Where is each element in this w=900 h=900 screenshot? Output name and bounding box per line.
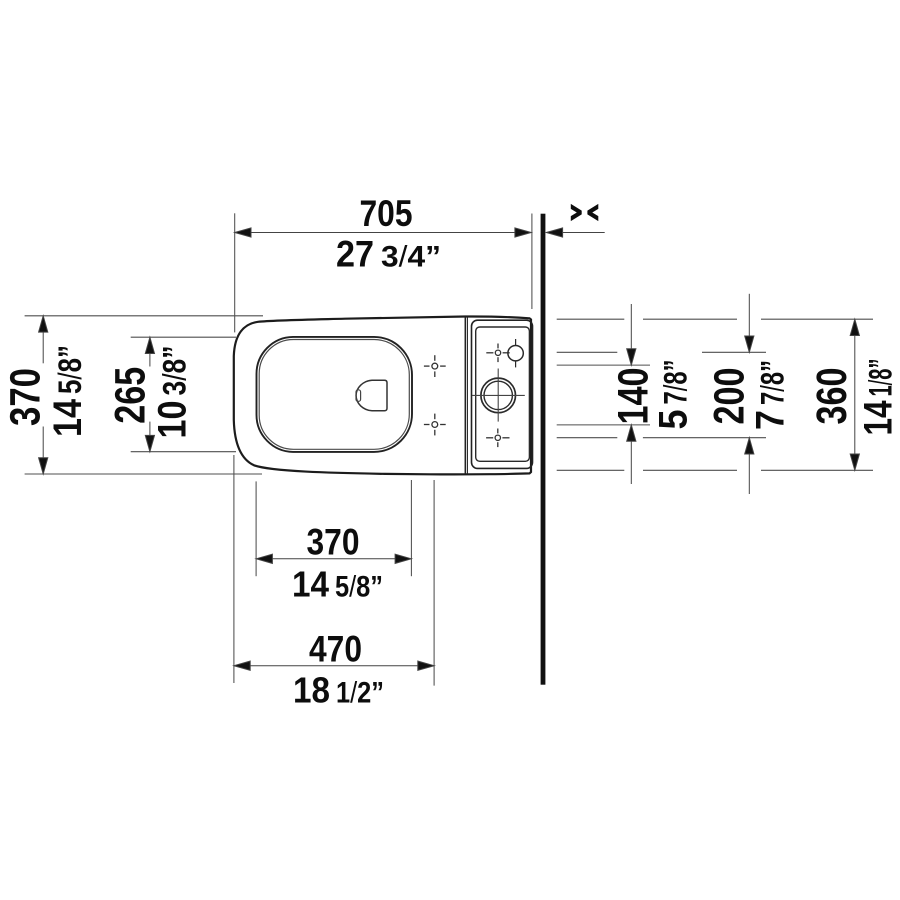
svg-text:57/8”: 57/8” [652,360,696,430]
svg-text:265: 265 [107,367,155,424]
svg-text:145/8”: 145/8” [292,564,383,605]
svg-text:141/8”: 141/8” [857,359,900,436]
svg-text:470: 470 [309,629,362,670]
svg-text:273/4”: 273/4” [336,234,441,275]
svg-text:370: 370 [307,522,360,563]
svg-text:181/2”: 181/2” [293,670,384,711]
svg-text:200: 200 [706,368,754,425]
svg-text:103/8”: 103/8” [151,346,195,439]
svg-text:370: 370 [2,368,50,426]
svg-text:140: 140 [610,368,658,425]
svg-text:705: 705 [360,193,413,234]
svg-text:145/8”: 145/8” [46,345,90,437]
svg-text:360: 360 [808,368,856,425]
svg-text:77/8”: 77/8” [749,360,793,430]
